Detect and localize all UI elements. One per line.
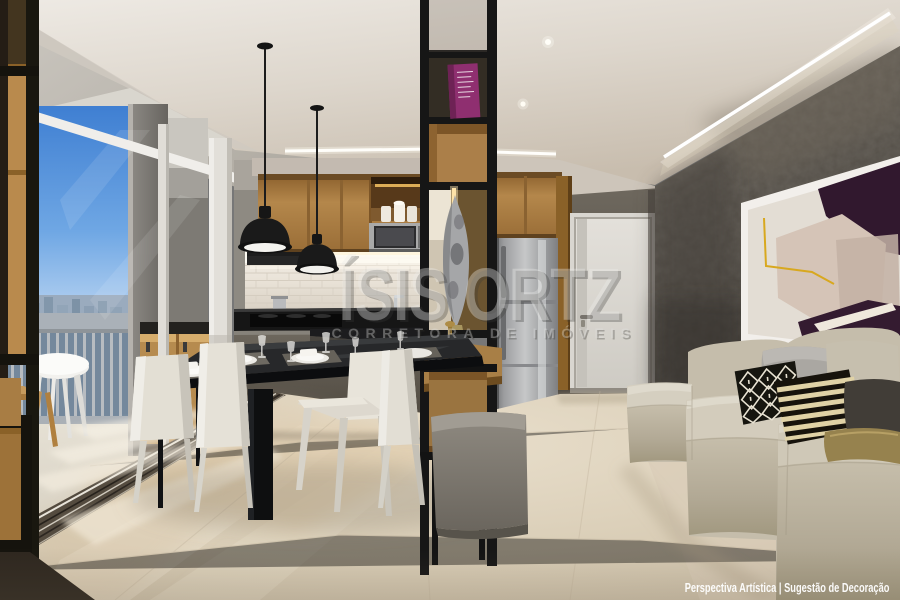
svg-text:Perspectiva Artística | Sugest: Perspectiva Artística | Sugestão de Deco…	[685, 582, 890, 596]
svg-text:CORRETORA DE IMÓVEIS: CORRETORA DE IMÓVEIS	[331, 324, 636, 341]
